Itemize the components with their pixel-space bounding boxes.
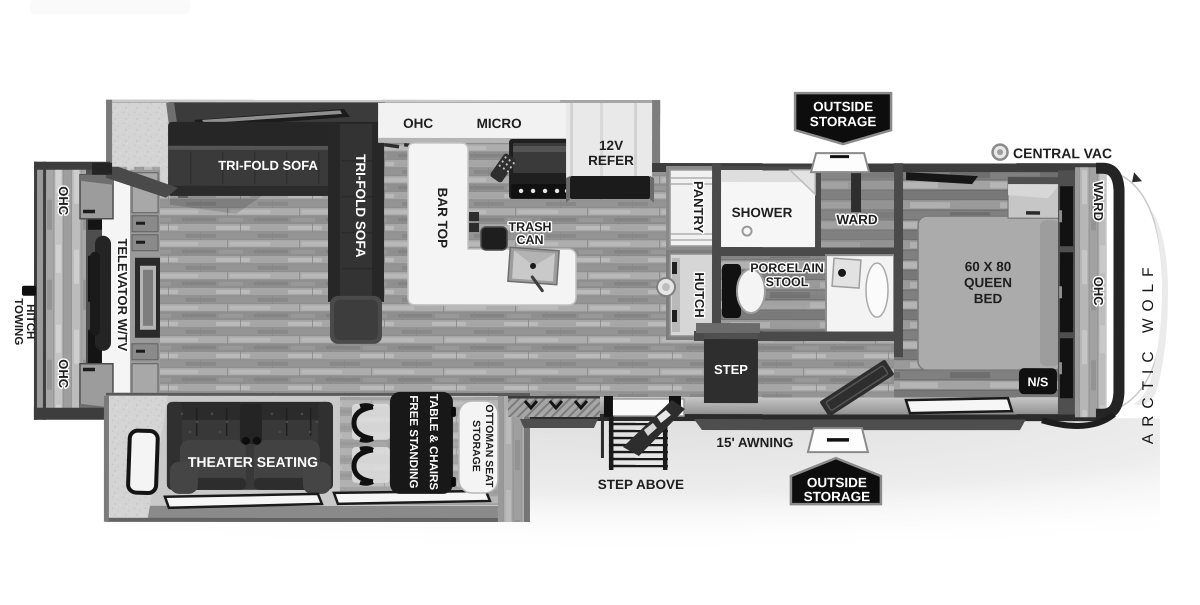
svg-text:OHC: OHC [56, 359, 71, 389]
svg-text:OTTOMAN SEAT: OTTOMAN SEAT [483, 404, 495, 488]
svg-text:WARD: WARD [836, 212, 878, 227]
svg-text:OUTSIDE: OUTSIDE [807, 475, 867, 490]
svg-text:OHC: OHC [403, 116, 433, 131]
svg-text:HUTCH: HUTCH [692, 272, 707, 318]
svg-text:CAN: CAN [516, 233, 543, 247]
svg-text:TRASH: TRASH [508, 220, 551, 234]
svg-text:WARD: WARD [1091, 181, 1106, 221]
svg-text:STORAGE: STORAGE [470, 420, 482, 472]
svg-text:STORAGE: STORAGE [810, 114, 877, 129]
svg-text:TRI-FOLD SOFA: TRI-FOLD SOFA [218, 158, 318, 173]
svg-text:MICRO: MICRO [477, 116, 522, 131]
svg-text:THEATER SEATING: THEATER SEATING [188, 454, 318, 470]
svg-text:BAR TOP: BAR TOP [435, 188, 450, 249]
svg-text:TABLE & CHAIRS: TABLE & CHAIRS [427, 394, 439, 491]
svg-text:PANTRY: PANTRY [691, 181, 706, 233]
svg-text:STEP: STEP [714, 362, 748, 377]
svg-text:ARCTIC WOLF: ARCTIC WOLF [1140, 260, 1157, 444]
svg-text:FREE STANDING: FREE STANDING [407, 395, 419, 488]
svg-text:SHOWER: SHOWER [732, 205, 793, 220]
svg-text:TRI-FOLD SOFA: TRI-FOLD SOFA [353, 154, 368, 258]
svg-text:HITCH: HITCH [24, 304, 36, 339]
svg-text:CENTRAL VAC: CENTRAL VAC [1013, 145, 1112, 161]
svg-text:12V: 12V [599, 138, 623, 153]
svg-text:REFER: REFER [588, 153, 634, 168]
svg-text:TELEVATOR W/TV: TELEVATOR W/TV [115, 238, 130, 351]
svg-text:BED: BED [974, 291, 1003, 306]
svg-text:QUEEN: QUEEN [964, 275, 1012, 290]
svg-text:15' AWNING: 15' AWNING [716, 435, 793, 450]
svg-text:OHC: OHC [1091, 277, 1106, 307]
svg-text:TOWING: TOWING [12, 298, 24, 345]
svg-text:STORAGE: STORAGE [804, 489, 871, 504]
svg-text:N/S: N/S [1028, 375, 1049, 389]
svg-text:60 X 80: 60 X 80 [965, 259, 1012, 274]
svg-text:OHC: OHC [56, 186, 71, 216]
svg-text:OUTSIDE: OUTSIDE [813, 99, 873, 114]
svg-text:STEP ABOVE: STEP ABOVE [598, 477, 684, 492]
svg-text:PORCELAIN: PORCELAIN [750, 261, 824, 275]
svg-text:STOOL: STOOL [766, 275, 809, 289]
